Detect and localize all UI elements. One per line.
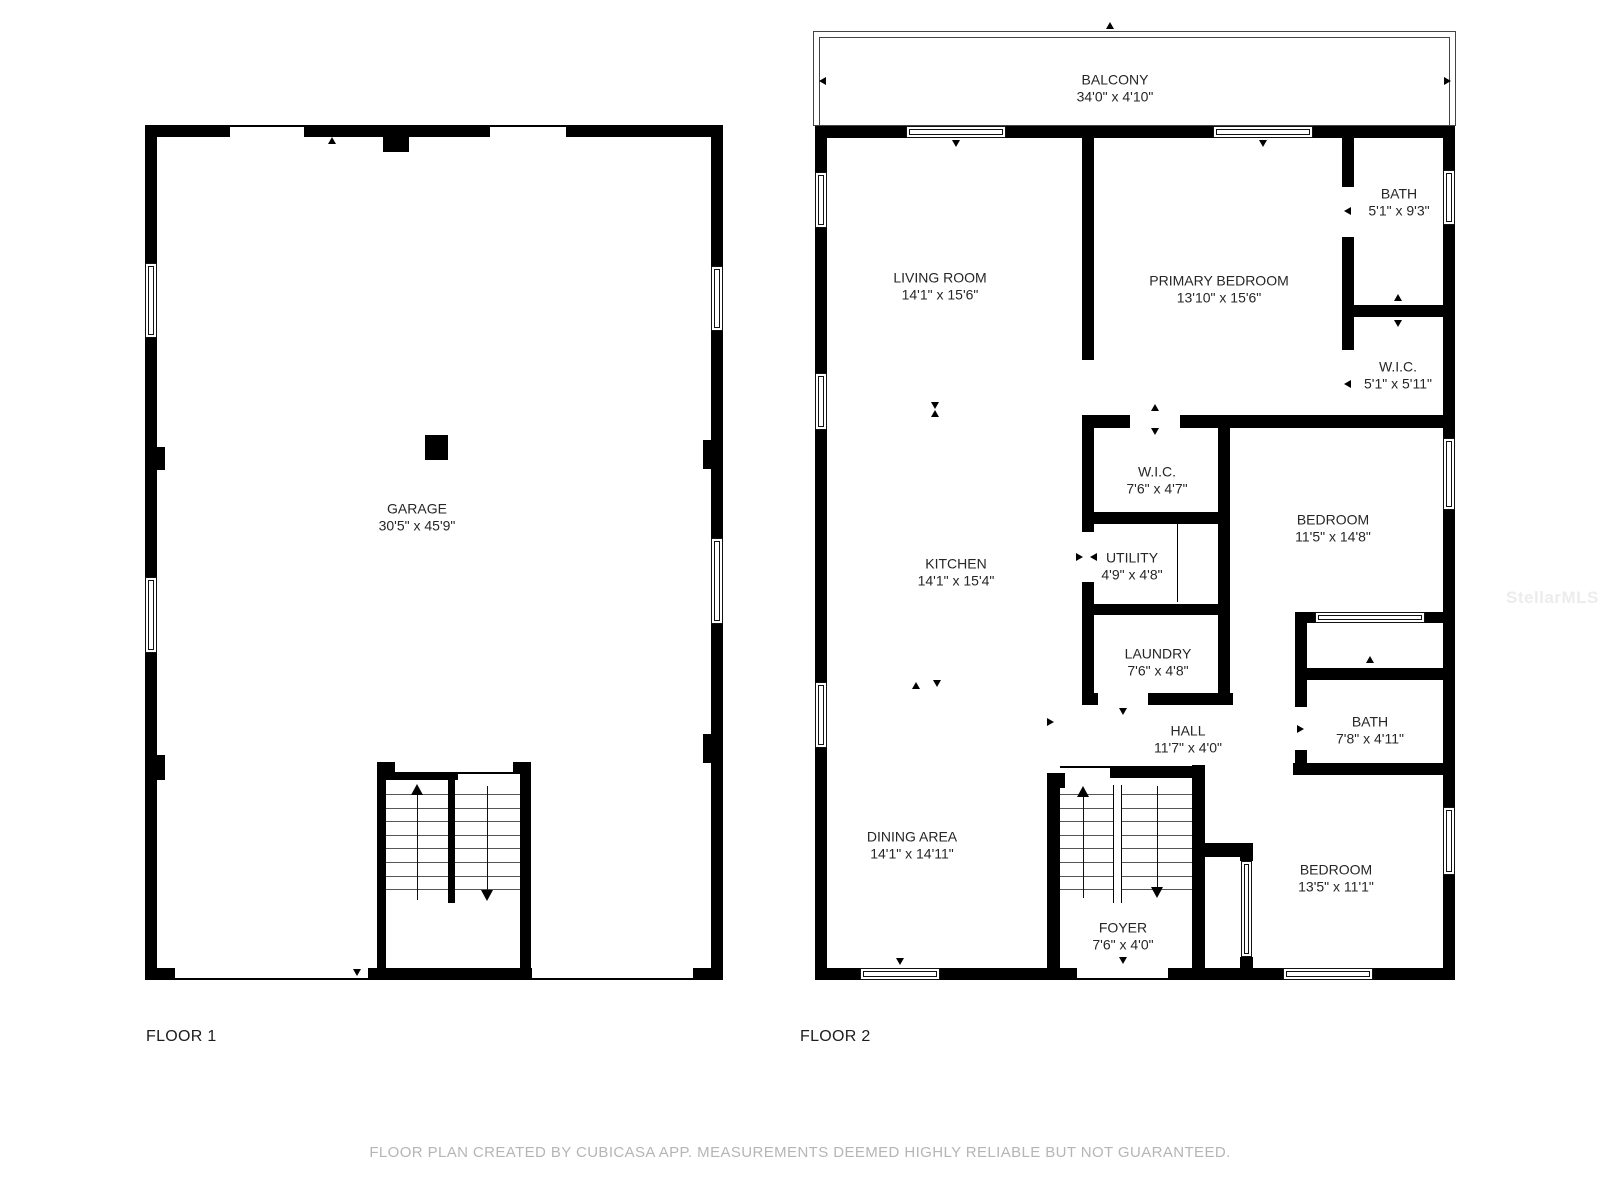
window: [1241, 861, 1252, 957]
stair-direction-arrow-shaft: [1157, 786, 1158, 890]
room-dimensions: 11'7" x 4'0": [1154, 739, 1222, 756]
stair-tread: [1060, 889, 1113, 890]
wall-segment: [448, 780, 455, 903]
door-marker-icon: [1151, 428, 1159, 435]
wall-segment: [815, 126, 827, 172]
opening-line: [1077, 978, 1168, 980]
room-name: HALL: [1154, 723, 1222, 740]
stair-direction-arrow-down-icon: [1151, 887, 1163, 898]
room-label-bath: BATH5'1" x 9'3": [1368, 186, 1429, 219]
wall-segment: [815, 228, 827, 373]
room-label-bedroom: BEDROOM11'5" x 14'8": [1295, 512, 1371, 545]
wall-segment: [1082, 582, 1094, 705]
wall-segment: [386, 772, 458, 780]
wall-segment: [1218, 428, 1230, 705]
window-pane: [1244, 864, 1249, 954]
wall-segment: [1443, 126, 1455, 170]
door-marker-icon: [1297, 725, 1304, 733]
room-label-foyer: FOYER7'6" x 4'0": [1092, 920, 1153, 953]
opening-line: [532, 978, 693, 980]
opening-line: [1121, 785, 1122, 903]
window-pane: [148, 266, 154, 335]
window: [711, 538, 723, 624]
wall-segment: [1342, 137, 1354, 187]
wall-segment: [1373, 968, 1455, 980]
door-marker-icon: [1047, 718, 1054, 726]
room-name: W.I.C.: [1126, 464, 1187, 481]
wall-segment: [157, 447, 165, 470]
floor-plan-image: StellarMLS FLOOR PLAN CREATED BY CUBICAS…: [0, 0, 1600, 1200]
wall-segment: [1110, 766, 1192, 778]
stair-direction-arrow-down-icon: [481, 890, 493, 901]
room-label-w-i-c-: W.I.C.5'1" x 5'11": [1364, 359, 1432, 392]
room-dimensions: 13'5" x 11'1": [1298, 878, 1374, 895]
room-name: DINING AREA: [867, 829, 957, 846]
window-pane: [714, 541, 720, 621]
wall-segment: [1240, 957, 1253, 980]
window: [815, 682, 827, 748]
door-marker-icon: [912, 682, 920, 689]
room-dimensions: 11'5" x 14'8": [1295, 528, 1371, 545]
room-label-garage: GARAGE30'5" x 45'9": [379, 501, 456, 534]
wall-segment: [1192, 766, 1205, 843]
wall-segment: [1295, 750, 1307, 763]
room-label-bedroom: BEDROOM13'5" x 11'1": [1298, 862, 1374, 895]
window-pane: [1216, 129, 1310, 135]
window: [1283, 968, 1373, 980]
wall-segment: [157, 755, 165, 780]
window: [1443, 807, 1455, 875]
door-marker-icon: [933, 680, 941, 687]
wall-segment: [1082, 415, 1130, 428]
room-label-utility: UTILITY4'9" x 4'8": [1101, 550, 1162, 583]
window-pane: [1446, 173, 1452, 222]
wall-segment: [1047, 788, 1060, 980]
room-name: W.I.C.: [1364, 359, 1432, 376]
room-name: PRIMARY BEDROOM: [1149, 273, 1289, 290]
room-dimensions: 30'5" x 45'9": [379, 517, 456, 534]
stair-direction-arrow-shaft: [487, 786, 488, 893]
opening-line: [458, 772, 520, 774]
wall-segment: [1047, 773, 1065, 788]
room-dimensions: 7'8" x 4'11": [1336, 730, 1404, 747]
door-marker-icon: [931, 402, 939, 409]
wall-segment: [145, 125, 230, 137]
door-marker-icon: [328, 137, 336, 144]
wall-segment: [1168, 968, 1283, 980]
stair-tread: [1060, 862, 1113, 863]
door-marker-icon: [819, 77, 826, 85]
stair-tread: [1060, 848, 1113, 849]
door-marker-icon: [1106, 22, 1114, 29]
room-dimensions: 14'1" x 15'4": [918, 572, 995, 589]
room-name: BEDROOM: [1298, 862, 1374, 879]
room-label-kitchen: KITCHEN14'1" x 15'4": [918, 556, 995, 589]
stair-tread: [1060, 835, 1113, 836]
wall-segment: [304, 125, 490, 137]
wall-segment: [1192, 857, 1205, 980]
room-name: BALCONY: [1077, 72, 1154, 89]
room-dimensions: 4'9" x 4'8": [1101, 566, 1162, 583]
room-name: UTILITY: [1101, 550, 1162, 567]
door-marker-icon: [1344, 380, 1351, 388]
wall-segment: [711, 125, 723, 266]
door-marker-icon: [1076, 553, 1083, 561]
wall-segment: [703, 734, 711, 763]
wall-segment: [815, 968, 860, 980]
stair-direction-arrow-up-icon: [411, 784, 423, 795]
wall-segment: [1295, 680, 1307, 707]
wall-segment: [815, 126, 906, 138]
wall-segment: [145, 968, 175, 980]
stair-direction-arrow-shaft: [1083, 794, 1084, 898]
wall-segment: [1082, 604, 1230, 615]
room-name: FOYER: [1092, 920, 1153, 937]
opening-line: [230, 125, 304, 127]
wall-segment: [145, 125, 157, 263]
room-dimensions: 14'1" x 15'6": [893, 286, 986, 303]
door-marker-icon: [1366, 656, 1374, 663]
wall-segment: [1443, 875, 1455, 980]
window: [1213, 126, 1313, 138]
floor1-title: FLOOR 1: [146, 1028, 217, 1046]
wall-segment: [1082, 137, 1094, 360]
door-marker-icon: [952, 140, 960, 147]
room-label-primary-bedroom: PRIMARY BEDROOM13'10" x 15'6": [1149, 273, 1289, 306]
wall-segment: [815, 430, 827, 682]
wall-segment: [1180, 415, 1443, 428]
window: [145, 263, 157, 338]
wall-segment: [1443, 225, 1455, 438]
room-label-dining-area: DINING AREA14'1" x 14'11": [867, 829, 957, 862]
wall-segment: [1295, 612, 1315, 623]
room-name: BATH: [1368, 186, 1429, 203]
room-name: LAUNDRY: [1125, 646, 1192, 663]
stair-tread: [1060, 808, 1113, 809]
room-dimensions: 5'1" x 5'11": [1364, 375, 1432, 392]
door-marker-icon: [931, 410, 939, 417]
wall-segment: [1293, 763, 1443, 775]
floor2-title: FLOOR 2: [800, 1028, 871, 1046]
door-marker-icon: [1394, 320, 1402, 327]
window-pane: [1446, 810, 1452, 872]
wall-segment: [1425, 612, 1443, 623]
stair-direction-arrow-up-icon: [1077, 786, 1089, 797]
room-dimensions: 7'6" x 4'0": [1092, 936, 1153, 953]
window: [815, 172, 827, 228]
stair-direction-arrow-shaft: [417, 792, 418, 900]
room-name: GARAGE: [379, 501, 456, 518]
window-pane: [863, 971, 937, 977]
room-dimensions: 7'6" x 4'8": [1125, 662, 1192, 679]
room-label-w-i-c-: W.I.C.7'6" x 4'7": [1126, 464, 1187, 497]
door-marker-icon: [1119, 957, 1127, 964]
room-dimensions: 13'10" x 15'6": [1149, 289, 1289, 306]
wall-segment: [383, 137, 409, 152]
door-marker-icon: [1259, 140, 1267, 147]
window: [711, 266, 723, 331]
window: [1315, 612, 1425, 623]
opening-line: [490, 125, 566, 127]
wall-segment: [1240, 843, 1253, 861]
stellar-mls-watermark: StellarMLS: [1506, 588, 1599, 608]
wall-segment: [1082, 693, 1098, 705]
window: [815, 373, 827, 430]
window-pane: [148, 580, 154, 650]
window-pane: [1286, 971, 1370, 977]
stair-tread: [1060, 876, 1113, 877]
window-pane: [818, 175, 824, 225]
window-pane: [1446, 441, 1452, 507]
stair-tread: [1060, 821, 1113, 822]
room-label-laundry: LAUNDRY7'6" x 4'8": [1125, 646, 1192, 679]
wall-segment: [1313, 126, 1455, 138]
room-name: KITCHEN: [918, 556, 995, 573]
window-pane: [818, 685, 824, 745]
window-pane: [909, 129, 1003, 135]
door-marker-icon: [1394, 294, 1402, 301]
wall-segment: [368, 968, 532, 980]
wall-segment: [145, 338, 157, 577]
door-marker-icon: [1344, 207, 1351, 215]
window: [145, 577, 157, 653]
window-pane: [714, 269, 720, 328]
room-label-bath: BATH7'8" x 4'11": [1336, 714, 1404, 747]
window: [1443, 170, 1455, 225]
room-name: LIVING ROOM: [893, 270, 986, 287]
door-marker-icon: [1444, 77, 1451, 85]
disclaimer-text: FLOOR PLAN CREATED BY CUBICASA APP. MEAS…: [0, 1144, 1600, 1161]
room-name: BATH: [1336, 714, 1404, 731]
wall-segment: [377, 773, 386, 980]
room-dimensions: 34'0" x 4'10": [1077, 88, 1154, 105]
opening-line: [1113, 785, 1114, 903]
room-name: BEDROOM: [1295, 512, 1371, 529]
window-pane: [1318, 615, 1422, 620]
wall-segment: [1342, 237, 1354, 350]
wall-segment: [1443, 510, 1455, 807]
wall-segment: [566, 125, 723, 137]
room-label-balcony: BALCONY34'0" x 4'10": [1077, 72, 1154, 105]
opening-line: [1177, 517, 1178, 602]
wall-segment: [1006, 126, 1213, 138]
room-dimensions: 7'6" x 4'7": [1126, 480, 1187, 497]
wall-segment: [1295, 668, 1443, 680]
wall-segment: [703, 440, 711, 469]
opening-line: [1060, 766, 1110, 768]
door-marker-icon: [896, 958, 904, 965]
door-marker-icon: [1090, 553, 1097, 561]
door-marker-icon: [1151, 404, 1159, 411]
window: [860, 968, 940, 980]
wall-segment: [1082, 512, 1230, 524]
door-marker-icon: [1119, 708, 1127, 715]
room-dimensions: 5'1" x 9'3": [1368, 202, 1429, 219]
window: [906, 126, 1006, 138]
wall-segment: [815, 748, 827, 980]
window: [1443, 438, 1455, 510]
opening-line: [175, 978, 368, 980]
door-marker-icon: [353, 969, 361, 976]
wall-segment: [693, 968, 723, 980]
window-pane: [818, 376, 824, 427]
wall-segment: [711, 624, 723, 980]
wall-segment: [425, 435, 448, 460]
wall-segment: [711, 331, 723, 538]
wall-segment: [520, 773, 531, 980]
wall-segment: [145, 653, 157, 980]
wall-segment: [1148, 693, 1233, 705]
room-label-living-room: LIVING ROOM14'1" x 15'6": [893, 270, 986, 303]
wall-segment: [1354, 305, 1443, 317]
room-label-hall: HALL11'7" x 4'0": [1154, 723, 1222, 756]
room-dimensions: 14'1" x 14'11": [867, 845, 957, 862]
